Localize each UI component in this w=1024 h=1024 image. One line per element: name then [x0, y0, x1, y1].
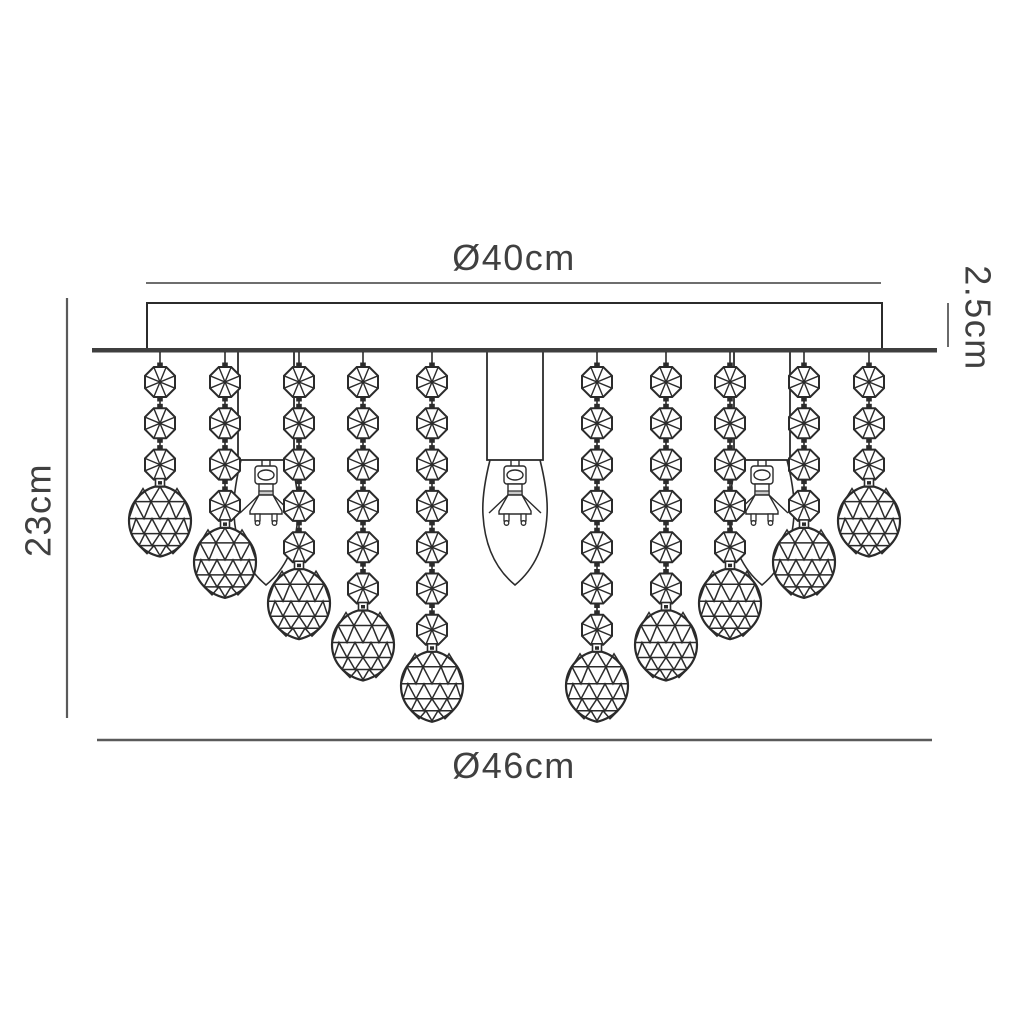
crystal-bead [145, 404, 175, 443]
crystal-ball [129, 479, 191, 557]
crystal-bead [417, 445, 447, 484]
crystal-bead [348, 404, 378, 443]
crystal-bead [651, 486, 681, 525]
ceiling-plate [92, 348, 937, 353]
overall-height-label: 23cm [18, 463, 59, 557]
crystal-ball [773, 520, 835, 598]
crystal-bead [789, 363, 819, 402]
crystal-ball [635, 603, 697, 681]
crystal-strand [635, 352, 697, 681]
crystal-bead [651, 445, 681, 484]
crystal-bead [417, 363, 447, 402]
crystal-bead [582, 363, 612, 402]
crystal-bead [582, 445, 612, 484]
crystal-ball [566, 644, 628, 722]
candle-bulb [483, 350, 547, 585]
bulbs-layer [234, 350, 794, 585]
crystal-bead [651, 404, 681, 443]
product-drawing: Ø40cm 2.5cm 23cm Ø46cm [0, 0, 1024, 1024]
crystal-bead [348, 363, 378, 402]
crystal-ball [699, 561, 761, 639]
crystal-bead [210, 404, 240, 443]
crystal-bead [789, 404, 819, 443]
crystal-bead [417, 404, 447, 443]
crystal-ball [332, 603, 394, 681]
crystal-strand [401, 352, 463, 722]
crystal-ball [401, 644, 463, 722]
crystal-bead [582, 569, 612, 608]
bottom-diameter-label: Ø46cm [452, 745, 576, 786]
crystal-bead [210, 445, 240, 484]
crystal-bead [145, 363, 175, 402]
crystal-strand [129, 352, 191, 557]
crystal-bead [284, 486, 314, 525]
crystal-bead [854, 404, 884, 443]
crystal-bead [651, 363, 681, 402]
dimension-diagram: Ø40cm 2.5cm 23cm Ø46cm [0, 0, 1024, 1024]
crystal-bead [348, 528, 378, 567]
crystal-bead [348, 445, 378, 484]
canopy-height-label: 2.5cm [958, 265, 999, 371]
crystal-bead [582, 486, 612, 525]
crystal-bead [854, 363, 884, 402]
crystal-strand [332, 352, 394, 681]
crystal-bead [210, 363, 240, 402]
crystal-bead [348, 486, 378, 525]
crystal-strand [838, 352, 900, 557]
canopy-outline [147, 303, 882, 349]
crystal-bead [417, 528, 447, 567]
crystal-bead [651, 528, 681, 567]
top-diameter-label: Ø40cm [452, 237, 576, 278]
crystal-bead [715, 486, 745, 525]
crystal-bead [417, 486, 447, 525]
crystal-bead [417, 569, 447, 608]
crystal-bead [789, 445, 819, 484]
crystal-bead [582, 404, 612, 443]
crystal-strand [566, 352, 628, 722]
crystal-bead [582, 528, 612, 567]
crystal-ball [838, 479, 900, 557]
crystal-ball [194, 520, 256, 598]
